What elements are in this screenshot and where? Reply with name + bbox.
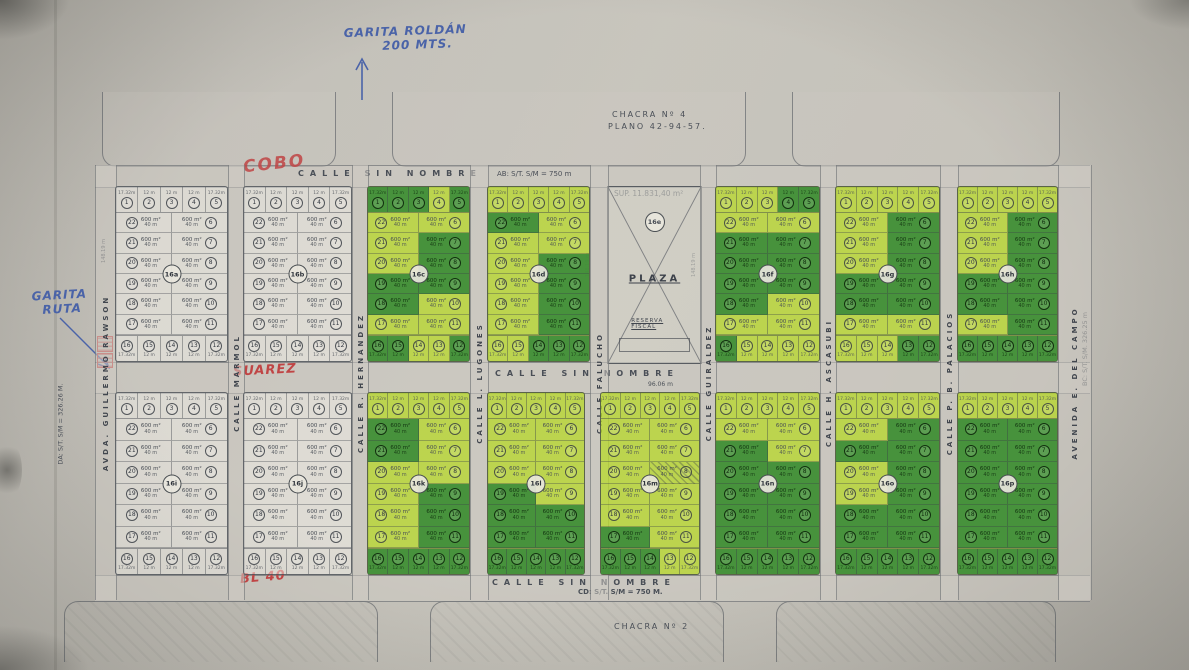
lot-number: 12 [803, 340, 815, 352]
lot-16j-17: 17600 m²40 m [244, 527, 298, 549]
lot-depth: 40 m [862, 430, 875, 436]
lot-depth: 40 m [430, 264, 443, 270]
lot-width-dim: 12 m [1022, 566, 1034, 571]
lot-number: 20 [495, 257, 507, 269]
lot-number: 5 [335, 403, 347, 415]
lot-number: 18 [724, 509, 736, 521]
lot-depth: 40 m [144, 304, 157, 310]
block-16m: 17.32m112 m212 m312 m417.32m522600 m²40 … [600, 392, 700, 575]
lot-number: 12 [210, 340, 222, 352]
lot-number: 11 [799, 531, 811, 543]
lot-number: 2 [624, 403, 636, 415]
lot-number: 4 [664, 403, 676, 415]
lot-16g-14: 1412 m [878, 336, 899, 361]
lot-16j-7: 600 m²40 m7 [298, 441, 352, 463]
lot-depth: 40 m [430, 494, 443, 500]
lot-number: 9 [449, 278, 461, 290]
lot-16g-15: 1512 m [857, 336, 878, 361]
lot-16o-10: 600 m²40 m10 [888, 505, 940, 527]
lot-number: 4 [433, 403, 445, 415]
lot-width-dim: 17.32m [800, 566, 817, 571]
lot-16i-21: 21600 m²40 m [116, 441, 172, 463]
lot-number: 13 [313, 553, 325, 565]
lot-number: 8 [919, 466, 931, 478]
lot-number: 20 [126, 257, 138, 269]
lot-16g-16: 1617.32m [836, 336, 857, 361]
lot-number: 21 [375, 445, 387, 457]
lot-number: 4 [902, 197, 914, 209]
lot-number: 10 [205, 509, 217, 521]
lot-16o-5: 17.32m5 [919, 393, 939, 418]
lot-16f-6: 600 m²40 m6 [768, 213, 820, 233]
lot-16j-5: 17.32m5 [330, 393, 351, 418]
lot-depth: 40 m [862, 223, 875, 229]
lot-width-dim: 12 m [188, 397, 200, 402]
lot-width-dim: 17.32m [681, 566, 698, 571]
chacra4-name: CHACRA Nº 4 [612, 110, 687, 119]
lot-width-dim: 12 m [624, 566, 636, 571]
lot-number: 11 [449, 318, 461, 330]
block-label-16d: 16d [529, 265, 548, 284]
lot-number: 19 [495, 278, 507, 290]
lot-16h-4: 12 m4 [1018, 187, 1038, 212]
lot-number: 19 [608, 488, 620, 500]
lot-depth: 40 m [661, 537, 674, 543]
chacra2-outline-right [776, 601, 1056, 662]
lot-depth: 40 m [899, 494, 912, 500]
lot-number: 15 [270, 340, 282, 352]
lot-depth: 40 m [862, 516, 875, 522]
block-16l: 17.32m112 m212 m312 m417.32m522600 m²40 … [487, 392, 585, 575]
lot-16g-11: 600 m²40 m11 [888, 315, 940, 335]
lot-depth: 40 m [550, 325, 563, 331]
lot-16o-16: 1617.32m [836, 549, 857, 574]
lot-depth: 40 m [779, 451, 792, 457]
lot-16a-17: 17600 m²40 m [116, 315, 172, 335]
lot-number: 11 [1038, 531, 1050, 543]
lot-16f-1: 17.32m1 [716, 187, 737, 212]
lot-number: 1 [962, 403, 974, 415]
garita-roldan-note: GARITA ROLDÁN 200 MTS. [344, 22, 468, 54]
lot-16m-10: 600 m²40 m10 [650, 505, 699, 527]
lot-depth: 40 m [983, 243, 996, 249]
lot-depth: 40 m [983, 325, 996, 331]
lot-number: 5 [453, 197, 465, 209]
lot-width-dim: 12 m [143, 191, 155, 196]
lot-number: 20 [494, 466, 506, 478]
lot-16m-5: 17.32m5 [680, 393, 699, 418]
lot-number: 10 [1038, 509, 1050, 521]
lot-number: 8 [205, 466, 217, 478]
lot-16a-5: 17.32m5 [206, 187, 227, 212]
lot-16m-2: 12 m2 [621, 393, 641, 418]
lot-16m-17: 17600 m²40 m [601, 527, 650, 549]
lot-width-dim: 12 m [313, 353, 325, 358]
lot-number: 5 [1042, 197, 1054, 209]
lot-depth: 40 m [546, 537, 559, 543]
lot-16b-22: 22600 m²40 m [244, 213, 298, 233]
lot-16b-4: 12 m4 [309, 187, 331, 212]
lot-16n-5: 17.32m5 [799, 393, 819, 418]
lot-16f-5: 17.32m5 [799, 187, 819, 212]
lot-number: 21 [495, 237, 507, 249]
lot-depth: 40 m [394, 304, 407, 310]
lot-width-dim: 12 m [783, 397, 795, 402]
lot-16a-2: 12 m2 [138, 187, 160, 212]
lot-width-dim: 12 m [624, 397, 636, 402]
lot-depth: 40 m [899, 243, 912, 249]
lot-number: 17 [844, 531, 856, 543]
lot-width-dim: 12 m [292, 353, 304, 358]
lot-width-dim: 17.32m [118, 353, 135, 358]
lot-16b-17: 17600 m²40 m [244, 315, 298, 335]
lot-number: 12 [684, 553, 696, 565]
lot-16d-17: 17600 m²40 m [488, 315, 539, 335]
chacra4-outline-right [792, 92, 1060, 167]
lot-16m-6: 600 m²40 m6 [650, 419, 699, 441]
lot-depth: 40 m [779, 325, 792, 331]
lot-number: 15 [143, 553, 155, 565]
lot-16a-7: 600 m²40 m7 [172, 233, 228, 253]
block-label-16h: 16h [998, 265, 1017, 284]
chacra2-outline-left [64, 601, 378, 662]
lot-number: 18 [608, 509, 620, 521]
lot-depth: 40 m [983, 264, 996, 270]
lot-number: 1 [720, 403, 732, 415]
lot-16l-6: 600 m²40 m6 [536, 419, 584, 441]
lot-number: 19 [844, 278, 856, 290]
lot-number: 18 [495, 298, 507, 310]
lot-16o-15: 1512 m [857, 549, 878, 574]
lot-16h-10: 600 m²40 m10 [1008, 294, 1058, 314]
lot-depth: 40 m [862, 494, 875, 500]
lot-16i-5: 17.32m5 [206, 393, 227, 418]
lot-width-dim: 17.32m [369, 353, 386, 358]
lot-number: 19 [724, 488, 736, 500]
lot-16p-11: 600 m²40 m11 [1008, 527, 1058, 549]
lot-16d-5: 17.32m5 [570, 187, 589, 212]
lot-number: 6 [330, 423, 342, 435]
lot-16d-14: 1412 m [529, 336, 549, 361]
lot-16k-15: 1512 m [388, 549, 408, 574]
lot-number: 8 [330, 466, 342, 478]
lot-width-dim: 17.32m [920, 191, 937, 196]
lot-depth: 40 m [899, 325, 912, 331]
block-16j: 17.32m112 m212 m312 m417.32m522600 m²40 … [243, 392, 352, 575]
lot-width-dim: 12 m [882, 397, 894, 402]
lot-16p-4: 12 m4 [1018, 393, 1038, 418]
lot-16h-13: 1312 m [1018, 336, 1038, 361]
top-edge-measurement: AB: S/T. S/M = 750 m [497, 170, 571, 178]
lot-number: 7 [799, 237, 811, 249]
lot-depth: 40 m [185, 430, 198, 436]
lot-16n-4: 12 m4 [778, 393, 799, 418]
lot-16l-16: 1617.32m [488, 549, 507, 574]
lot-width-dim: 17.32m [717, 397, 734, 402]
lot-number: 6 [449, 423, 461, 435]
lot-width-dim: 17.32m [451, 353, 468, 358]
lot-depth: 40 m [899, 473, 912, 479]
lot-number: 9 [919, 278, 931, 290]
lot-width-dim: 17.32m [800, 353, 817, 358]
lot-depth: 40 m [271, 537, 284, 543]
lot-number: 15 [392, 340, 404, 352]
lot-depth: 40 m [661, 516, 674, 522]
lot-depth: 40 m [862, 451, 875, 457]
lot-16c-16: 1617.32m [368, 336, 388, 361]
lot-number: 9 [565, 488, 577, 500]
lot-width-dim: 17.32m [246, 353, 263, 358]
lot-number: 12 [923, 340, 935, 352]
left-edge-measurement: DA: S/T. S/M = 326.26 M. [57, 383, 65, 464]
lot-depth: 40 m [144, 430, 157, 436]
lot-number: 8 [449, 466, 461, 478]
lot-16m-22: 22600 m²40 m [601, 419, 650, 441]
lot-number: 17 [253, 531, 265, 543]
lot-number: 11 [205, 531, 217, 543]
lot-number: 11 [205, 318, 217, 330]
lot-width-dim: 17.32m [571, 353, 588, 358]
lot-16n-22: 22600 m²40 m [716, 419, 768, 441]
garita-roldan-arrow [352, 56, 372, 102]
lot-16j-6: 600 m²40 m6 [298, 419, 352, 441]
lot-depth: 40 m [862, 473, 875, 479]
lot-number: 7 [1038, 237, 1050, 249]
lot-number: 17 [126, 318, 138, 330]
lot-depth: 40 m [546, 473, 559, 479]
lot-number: 2 [392, 403, 404, 415]
lot-16b-7: 600 m²40 m7 [298, 233, 352, 253]
lot-depth: 40 m [310, 473, 323, 479]
lot-depth: 40 m [430, 473, 443, 479]
lot-depth: 40 m [1018, 243, 1031, 249]
lot-number: 15 [861, 340, 873, 352]
lot-width-dim: 12 m [166, 397, 178, 402]
lot-number: 17 [965, 531, 977, 543]
lot-width-dim: 12 m [433, 566, 445, 571]
lot-number: 14 [530, 553, 542, 565]
lot-number: 9 [799, 278, 811, 290]
lot-depth: 40 m [185, 325, 198, 331]
lot-16g-3: 12 m3 [878, 187, 899, 212]
lot-16f-12: 1217.32m [799, 336, 819, 361]
lot-number: 22 [375, 217, 387, 229]
lot-16h-1: 17.32m1 [958, 187, 978, 212]
lot-16d-4: 12 m4 [549, 187, 569, 212]
lot-depth: 40 m [144, 494, 157, 500]
lot-16k-10: 600 m²40 m10 [419, 505, 470, 527]
lot-number: 15 [861, 553, 873, 565]
lot-number: 2 [512, 197, 524, 209]
lot-number: 3 [881, 197, 893, 209]
block-16n: 17.32m112 m212 m312 m417.32m522600 m²40 … [715, 392, 820, 575]
scan-corner-topleft [0, 0, 70, 40]
lot-16g-10: 600 m²40 m10 [888, 294, 940, 314]
lot-width-dim: 12 m [1002, 566, 1014, 571]
lot-number: 14 [291, 340, 303, 352]
lot-depth: 40 m [271, 284, 284, 290]
lot-16l-12: 1217.32m [566, 549, 584, 574]
lot-number: 16 [962, 340, 974, 352]
lot-number: 15 [511, 553, 523, 565]
lot-number: 7 [1038, 445, 1050, 457]
lot-width-dim: 12 m [861, 191, 873, 196]
lot-16i-2: 12 m2 [138, 393, 160, 418]
top-street-name: CALLE SIN NOMBRE [298, 169, 482, 178]
lot-16d-10: 600 m²40 m10 [539, 294, 590, 314]
lot-number: 6 [680, 423, 692, 435]
lot-16h-7: 600 m²40 m7 [1008, 233, 1058, 253]
lot-number: 1 [720, 197, 732, 209]
lot-number: 3 [413, 403, 425, 415]
lot-number: 5 [453, 403, 465, 415]
lot-depth: 40 m [862, 284, 875, 290]
lot-number: 11 [919, 318, 931, 330]
lot-depth: 40 m [1018, 304, 1031, 310]
lot-number: 13 [433, 340, 445, 352]
lot-width-dim: 12 m [530, 566, 542, 571]
lot-width-dim: 17.32m [451, 191, 468, 196]
lot-number: 4 [313, 197, 325, 209]
lot-depth: 40 m [742, 325, 755, 331]
lot-depth: 40 m [983, 494, 996, 500]
block-16a: 17.32m112 m212 m312 m417.32m522600 m²40 … [115, 186, 228, 362]
lot-number: 17 [495, 318, 507, 330]
street-name-label: CALLE H. ASCASUBI [825, 318, 833, 446]
lot-number: 14 [533, 340, 545, 352]
lot-depth: 40 m [983, 451, 996, 457]
lot-width-dim: 17.32m [571, 191, 588, 196]
lot-16a-16: 1617.32m [116, 336, 138, 361]
lot-number: 9 [1038, 278, 1050, 290]
lot-16l-17: 17600 m²40 m [488, 527, 536, 549]
lot-16l-18: 18600 m²40 m [488, 505, 536, 527]
lot-number: 15 [512, 340, 524, 352]
lot-number: 13 [902, 553, 914, 565]
lot-16c-10: 600 m²40 m10 [419, 294, 470, 314]
lot-16j-22: 22600 m²40 m [244, 419, 298, 441]
lot-depth: 40 m [271, 451, 284, 457]
lot-16n-2: 12 m2 [737, 393, 758, 418]
lot-number: 13 [1022, 340, 1034, 352]
lot-depth: 40 m [779, 243, 792, 249]
lot-16a-1: 17.32m1 [116, 187, 138, 212]
lot-number: 11 [569, 318, 581, 330]
lot-16f-17: 17600 m²40 m [716, 315, 768, 335]
lot-number: 14 [1002, 340, 1014, 352]
lot-depth: 40 m [899, 304, 912, 310]
lot-width-dim: 12 m [741, 353, 753, 358]
lot-number: 18 [126, 509, 138, 521]
lot-width-dim: 12 m [903, 353, 915, 358]
lot-number: 14 [166, 340, 178, 352]
lot-16k-16: 1617.32m [368, 549, 388, 574]
lot-number: 6 [205, 423, 217, 435]
lot-number: 21 [126, 237, 138, 249]
lot-16h-2: 12 m2 [978, 187, 998, 212]
lot-number: 20 [844, 466, 856, 478]
lot-16c-5: 17.32m5 [450, 187, 469, 212]
lot-depth: 40 m [983, 284, 996, 290]
lot-16i-10: 600 m²40 m10 [172, 505, 228, 527]
lot-depth: 40 m [185, 473, 198, 479]
lot-number: 17 [375, 318, 387, 330]
lot-depth: 40 m [626, 430, 639, 436]
lot-depth: 40 m [513, 473, 526, 479]
lot-16j-10: 600 m²40 m10 [298, 505, 352, 527]
lot-width-dim: 12 m [270, 397, 282, 402]
lot-number: 9 [330, 488, 342, 500]
lot-number: 13 [433, 553, 445, 565]
lot-16k-6: 600 m²40 m6 [419, 419, 470, 441]
lot-16d-21: 21600 m²40 m [488, 233, 539, 253]
lot-number: 13 [188, 553, 200, 565]
lot-16j-4: 12 m4 [309, 393, 331, 418]
lot-width-dim: 12 m [511, 397, 523, 402]
garita-roldan-line2: 200 MTS. [382, 36, 467, 53]
lot-number: 21 [965, 445, 977, 457]
lot-depth: 40 m [862, 243, 875, 249]
lot-number: 5 [210, 197, 222, 209]
lot-depth: 40 m [144, 537, 157, 543]
lot-16k-1: 17.32m1 [368, 393, 388, 418]
lot-16j-13: 1312 m [309, 549, 331, 574]
block-label-16c: 16c [409, 265, 428, 284]
lot-width-dim: 17.32m [602, 566, 619, 571]
lot-depth: 40 m [862, 325, 875, 331]
lot-16g-5: 17.32m5 [919, 187, 939, 212]
lot-width-dim: 12 m [511, 566, 523, 571]
lot-number: 20 [375, 257, 387, 269]
lot-number: 3 [291, 197, 303, 209]
lot-16p-18: 18600 m²40 m [958, 505, 1008, 527]
lot-16g-21: 21600 m²40 m [836, 233, 888, 253]
lot-16m-4: 12 m4 [660, 393, 680, 418]
lot-number: 7 [919, 445, 931, 457]
lot-number: 1 [840, 403, 852, 415]
lot-depth: 40 m [742, 304, 755, 310]
lot-number: 12 [803, 553, 815, 565]
lot-width-dim: 12 m [188, 353, 200, 358]
lot-width-dim: 17.32m [246, 397, 263, 402]
lot-width-dim: 12 m [903, 397, 915, 402]
lot-16f-18: 18600 m²40 m [716, 294, 768, 314]
lot-16b-18: 18600 m²40 m [244, 294, 298, 314]
lot-number: 10 [449, 509, 461, 521]
lot-width-dim: 17.32m [1039, 566, 1056, 571]
lot-16n-17: 17600 m²40 m [716, 527, 768, 549]
lot-number: 15 [624, 553, 636, 565]
lot-number: 14 [644, 553, 656, 565]
lot-number: 21 [126, 445, 138, 457]
lot-number: 5 [569, 403, 581, 415]
lot-16h-15: 1512 m [978, 336, 998, 361]
lot-16d-3: 12 m3 [529, 187, 549, 212]
lot-number: 2 [982, 197, 994, 209]
lot-16o-1: 17.32m1 [836, 393, 857, 418]
lot-number: 10 [919, 509, 931, 521]
lot-depth: 40 m [271, 243, 284, 249]
lot-depth: 40 m [144, 223, 157, 229]
lot-number: 2 [511, 403, 523, 415]
lot-number: 12 [335, 553, 347, 565]
lot-number: 7 [449, 237, 461, 249]
lot-depth: 40 m [144, 451, 157, 457]
lot-16h-17: 17600 m²40 m [958, 315, 1008, 335]
lot-number: 14 [881, 553, 893, 565]
lot-depth: 40 m [513, 537, 526, 543]
lot-number: 16 [604, 553, 616, 565]
